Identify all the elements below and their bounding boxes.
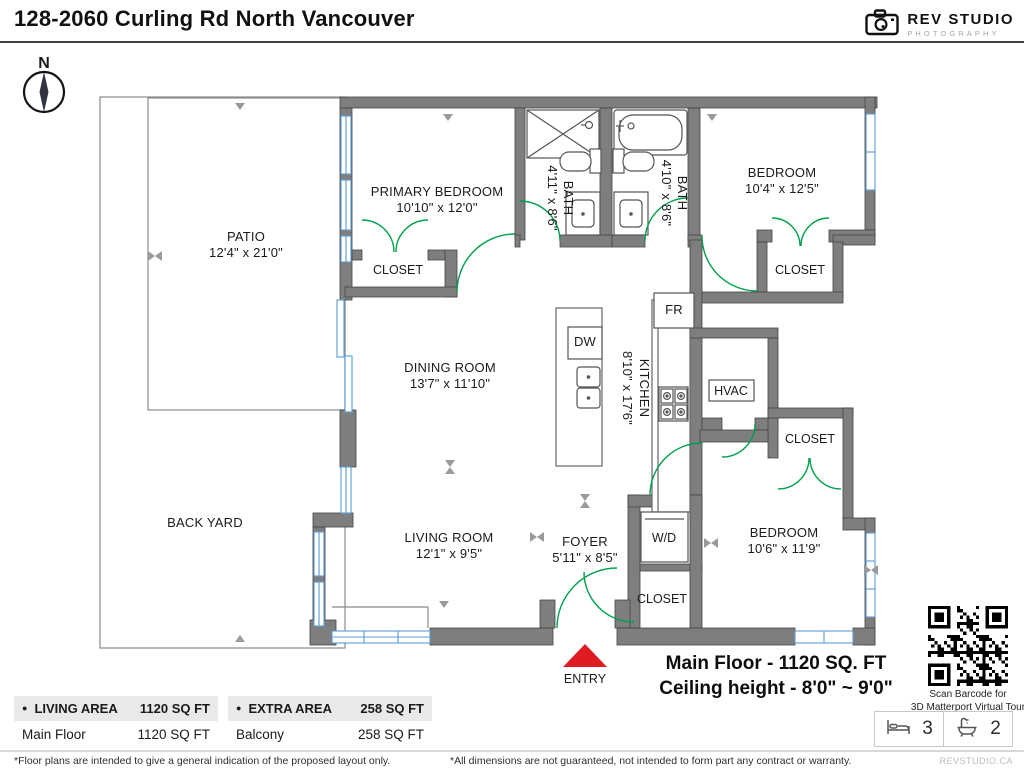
living-room-dims: 12'1" x 9'5" [416, 546, 483, 561]
extra-area-total: 258 SQ FT [360, 701, 424, 716]
patio-label: PATIO [227, 229, 265, 244]
bathtub-icon [955, 715, 979, 744]
footnote-center: *All dimensions are not guaranteed, not … [450, 755, 851, 767]
bath1-label: BATH [561, 181, 576, 216]
kitchen-counter [652, 293, 694, 512]
fridge-label: FR [665, 302, 683, 317]
bullet-icon: ● [236, 704, 241, 713]
bath1-dims: 4'11" x 8'6" [545, 165, 560, 231]
extra-area-header: ● EXTRA AREA 258 SQ FT [228, 696, 432, 721]
kitchen-label: KITCHEN [637, 359, 652, 417]
room-labels: PATIO 12'4" x 21'0" BACK YARD PRIMARY BE… [167, 160, 835, 686]
shower [527, 110, 599, 158]
kitchen-dims: 8'10" x 17'6" [620, 351, 635, 425]
hall-closet-label: CLOSET [785, 432, 835, 446]
row-value: 1120 SQ FT [137, 727, 210, 742]
primary-closet-label: CLOSET [373, 263, 423, 277]
foyer-closet-label: CLOSET [637, 592, 687, 606]
bath2-label: BATH [675, 176, 690, 211]
baths-cell: 2 [943, 712, 1012, 746]
baths-count: 2 [990, 718, 1001, 740]
backyard-label: BACK YARD [167, 515, 243, 530]
bedroom2-dims: 10'4" x 12'5" [745, 181, 819, 196]
primary-bedroom-label: PRIMARY BEDROOM [371, 184, 504, 199]
foyer-label: FOYER [562, 534, 608, 549]
dishwasher-label: DW [574, 334, 597, 349]
footnote-left: *Floor plans are intended to give a gene… [14, 755, 390, 767]
living-area-title: LIVING AREA [34, 701, 117, 716]
extra-area-table: ● EXTRA AREA 258 SQ FT Balcony 258 SQ FT [228, 696, 432, 744]
bed-bath-panel: 3 2 [874, 711, 1013, 747]
dining-room-dims: 13'7" x 11'10" [410, 376, 491, 391]
primary-bedroom-dims: 10'10" x 12'0" [396, 200, 478, 215]
toilet [613, 149, 654, 173]
qr-code [928, 606, 1008, 686]
patio-dims: 12'4" x 21'0" [209, 245, 283, 260]
toilet [560, 149, 601, 173]
living-area-table: ● LIVING AREA 1120 SQ FT Main Floor 1120… [14, 696, 218, 744]
footer-divider [0, 750, 1024, 752]
washer-dryer-label: W/D [652, 531, 676, 545]
vanity-sink [614, 192, 648, 235]
bedroom2-label: BEDROOM [748, 165, 817, 180]
table-row: Balcony 258 SQ FT [228, 721, 432, 744]
hvac-label: HVAC [714, 384, 748, 398]
dining-room-label: DINING ROOM [404, 360, 496, 375]
bedroom2-closet-label: CLOSET [775, 263, 825, 277]
compass-icon: N [24, 55, 64, 112]
row-label: Balcony [236, 727, 284, 742]
row-label: Main Floor [22, 727, 86, 742]
living-area-header: ● LIVING AREA 1120 SQ FT [14, 696, 218, 721]
bedroom3-label: BEDROOM [750, 525, 819, 540]
bath2-dims: 4'10" x 8'6" [659, 160, 674, 227]
bedroom3-dims: 10'6" x 11'9" [748, 541, 821, 556]
bed-icon [885, 716, 912, 743]
bullet-icon: ● [22, 704, 27, 713]
living-area-total: 1120 SQ FT [140, 701, 210, 716]
yard-outlines [100, 97, 428, 648]
living-room-label: LIVING ROOM [405, 530, 494, 545]
row-value: 258 SQ FT [358, 727, 424, 742]
extra-area-title: EXTRA AREA [248, 701, 332, 716]
beds-cell: 3 [875, 712, 943, 746]
table-row: Main Floor 1120 SQ FT [14, 721, 218, 744]
foyer-dims: 5'11" x 8'5" [552, 550, 618, 565]
qr-caption-line1: Scan Barcode for [880, 688, 1024, 701]
bathtub [614, 110, 687, 155]
site-credit: REVSTUDIO.CA [939, 756, 1013, 766]
compass-north-label: N [38, 55, 50, 72]
kitchen-island [556, 308, 602, 466]
beds-count: 3 [922, 718, 933, 740]
